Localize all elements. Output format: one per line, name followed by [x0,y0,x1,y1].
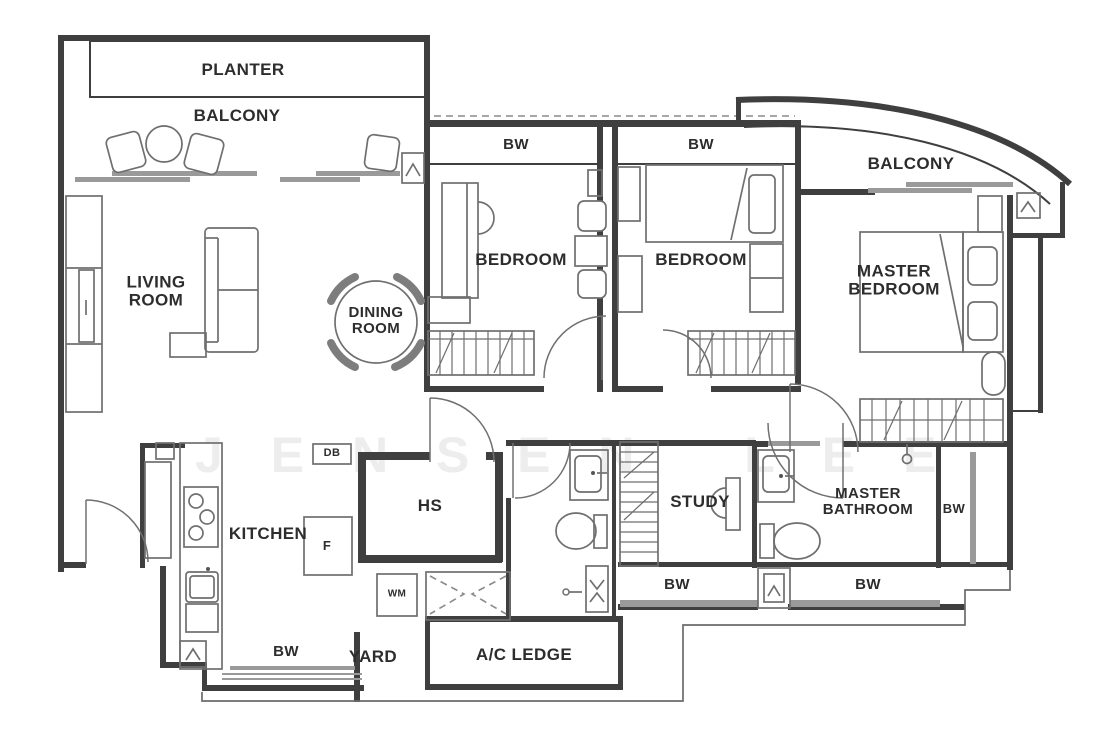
label-bw-master-bath: BW [855,577,881,593]
label-bw-bedroom-mid: BW [688,137,714,153]
label-bw-bedroom-left: BW [503,137,529,153]
tv-console [66,196,102,412]
balcony-ac-unit [402,153,424,183]
bedroom-mid-door [663,330,711,378]
floor-plan: J E N S E N L E E [0,0,1108,730]
label-db: DB [324,448,341,460]
label-bedroom-mid: BEDROOM [655,251,747,269]
label-bw-master-side: BW [943,502,965,516]
wardrobe-bedroom-left [428,331,534,375]
label-dining-room: DINING ROOM [349,305,404,337]
bedroom-mid-furniture [618,165,783,312]
label-study: STUDY [670,493,730,511]
wardrobe-master [860,399,1003,442]
label-living-room: LIVING ROOM [126,274,185,311]
coffee-table [170,333,206,357]
balcony-right-ac-unit [1017,193,1040,218]
label-bw-study: BW [664,577,690,593]
label-balcony-right: BALCONY [868,155,955,173]
bedroom-left-door [544,316,606,380]
label-bedroom-left: BEDROOM [475,251,567,269]
bw-ac-box [758,568,790,608]
label-ac-ledge: A/C LEDGE [476,646,572,664]
bathroom-door [513,443,570,498]
sofa [205,228,258,352]
bathroom-fixtures [556,450,608,612]
hs-door [430,398,494,462]
kitchen-fixtures [145,443,352,669]
label-fridge: F [323,539,331,553]
label-hs: HS [418,497,442,515]
label-planter: PLANTER [201,61,284,79]
label-yard: YARD [349,648,397,666]
label-wm: WM [388,590,407,601]
label-master-bathroom: MASTER BATHROOM [823,486,913,518]
label-bw-kitchen: BW [273,644,299,660]
study-wardrobe [620,442,658,566]
main-entrance-door [86,500,148,564]
label-balcony-left: BALCONY [194,107,281,125]
label-master-bedroom: MASTER BEDROOM [848,263,940,300]
bedroom-left-furniture [428,170,607,323]
floor-plan-drawing [0,0,1108,730]
label-kitchen: KITCHEN [229,525,307,543]
